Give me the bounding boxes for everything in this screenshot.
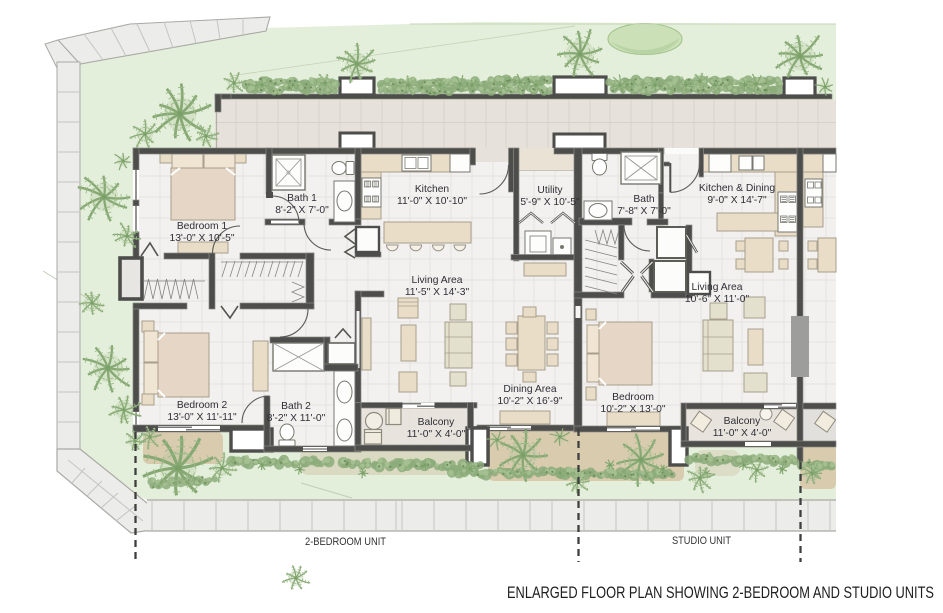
svg-text:11'-0" X 10'-10": 11'-0" X 10'-10" (397, 196, 467, 207)
svg-text:13'-0" X 11'-11": 13'-0" X 11'-11" (167, 412, 237, 423)
svg-text:Kitchen & Dining: Kitchen & Dining (699, 183, 775, 194)
svg-text:13'-0" X 10'-5": 13'-0" X 10'-5" (169, 233, 234, 244)
svg-text:7'-8" X 7'-0": 7'-8" X 7'-0" (617, 206, 671, 217)
svg-text:Balcony: Balcony (724, 416, 761, 427)
svg-text:STUDIO UNIT: STUDIO UNIT (672, 535, 731, 547)
svg-text:ENLARGED FLOOR PLAN SHOWING 2-: ENLARGED FLOOR PLAN SHOWING 2-BEDROOM AN… (507, 583, 934, 602)
svg-text:Bedroom: Bedroom (612, 392, 654, 403)
svg-text:Bath: Bath (633, 194, 654, 205)
svg-text:Bedroom 2: Bedroom 2 (177, 400, 228, 411)
svg-text:11'-0" X 4'-0": 11'-0" X 4'-0" (407, 429, 466, 440)
svg-text:Bedroom 1: Bedroom 1 (177, 221, 228, 232)
svg-text:11'-5" X 14'-3": 11'-5" X 14'-3" (405, 287, 470, 298)
svg-text:9'-0" X 14'-7": 9'-0" X 14'-7" (707, 195, 767, 206)
svg-text:Utility: Utility (537, 185, 563, 196)
svg-text:Bath 1: Bath 1 (287, 193, 317, 204)
svg-text:Bath 2: Bath 2 (281, 401, 311, 412)
svg-text:10'-2" X 16'-9": 10'-2" X 16'-9" (497, 396, 562, 407)
svg-text:8'-2" X 11'-0": 8'-2" X 11'-0" (267, 413, 326, 424)
svg-text:Dining Area: Dining Area (503, 384, 557, 395)
svg-text:Kitchen: Kitchen (415, 184, 450, 195)
svg-text:5'-9" X 10'-5": 5'-9" X 10'-5" (520, 197, 580, 208)
svg-text:2-BEDROOM UNIT: 2-BEDROOM UNIT (305, 536, 386, 548)
svg-text:10'-2" X 13'-0": 10'-2" X 13'-0" (600, 404, 665, 415)
svg-text:10'-6" X 11'-0": 10'-6" X 11'-0" (685, 294, 750, 305)
svg-text:Living Area: Living Area (412, 275, 463, 286)
svg-text:Living Area: Living Area (692, 282, 743, 293)
svg-text:11'-0" X 4'-0": 11'-0" X 4'-0" (713, 428, 772, 439)
svg-text:Balcony: Balcony (418, 417, 455, 428)
svg-text:8'-2" X 7'-0": 8'-2" X 7'-0" (275, 205, 329, 216)
